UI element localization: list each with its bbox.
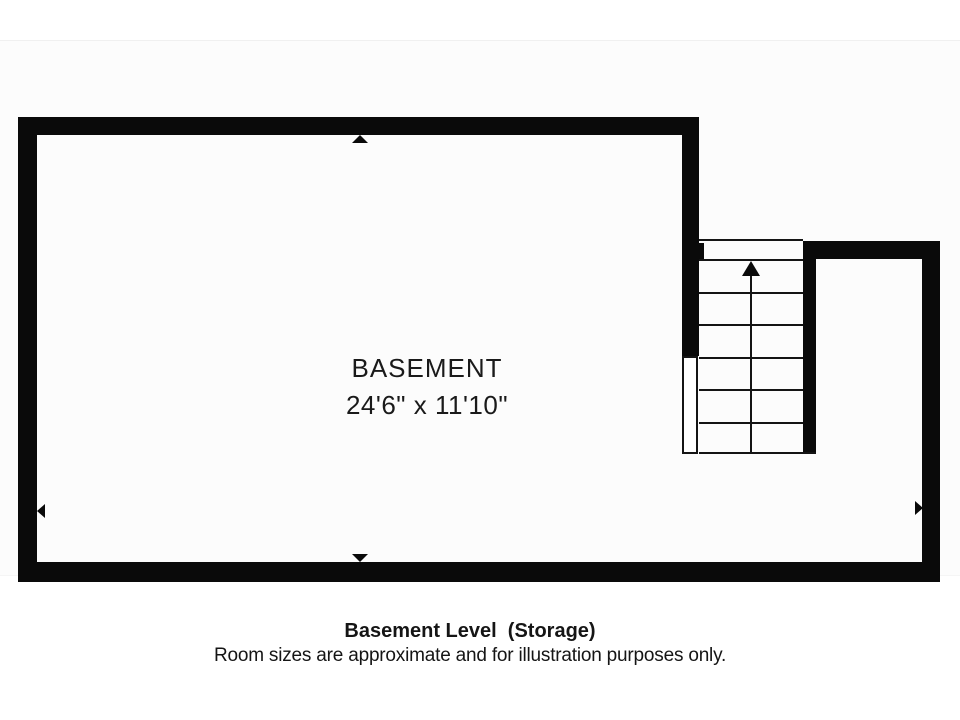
- wall-bottom: [18, 562, 940, 582]
- stair-landing-edge: [699, 239, 803, 241]
- stair-bottom-edge: [699, 452, 816, 454]
- caption-disclaimer: Room sizes are approximate and for illus…: [0, 644, 940, 667]
- triangle-down-icon: [352, 554, 368, 562]
- triangle-left-icon: [37, 504, 45, 518]
- room-name: BASEMENT: [227, 350, 627, 387]
- wall-top-right: [803, 241, 940, 259]
- caption: Basement Level (Storage) Room sizes are …: [0, 619, 940, 667]
- stair-direction-line: [750, 274, 752, 454]
- room-label: BASEMENT 24'6" x 11'10": [227, 350, 627, 424]
- floorplan-canvas: BASEMENT 24'6" x 11'10": [0, 40, 960, 576]
- wall-top: [18, 117, 699, 135]
- wall-left: [18, 117, 37, 582]
- triangle-up-icon: [352, 135, 368, 143]
- stairs-up-arrow-icon: [742, 261, 760, 276]
- wall-right: [922, 241, 940, 582]
- caption-title: Basement Level (Storage): [0, 619, 940, 643]
- triangle-right-icon: [915, 501, 923, 515]
- stair-door-opening: [682, 356, 698, 454]
- room-dimensions: 24'6" x 11'10": [227, 387, 627, 424]
- wall-stairwell-stub: [697, 243, 704, 259]
- wall-stairwell-right: [803, 243, 816, 454]
